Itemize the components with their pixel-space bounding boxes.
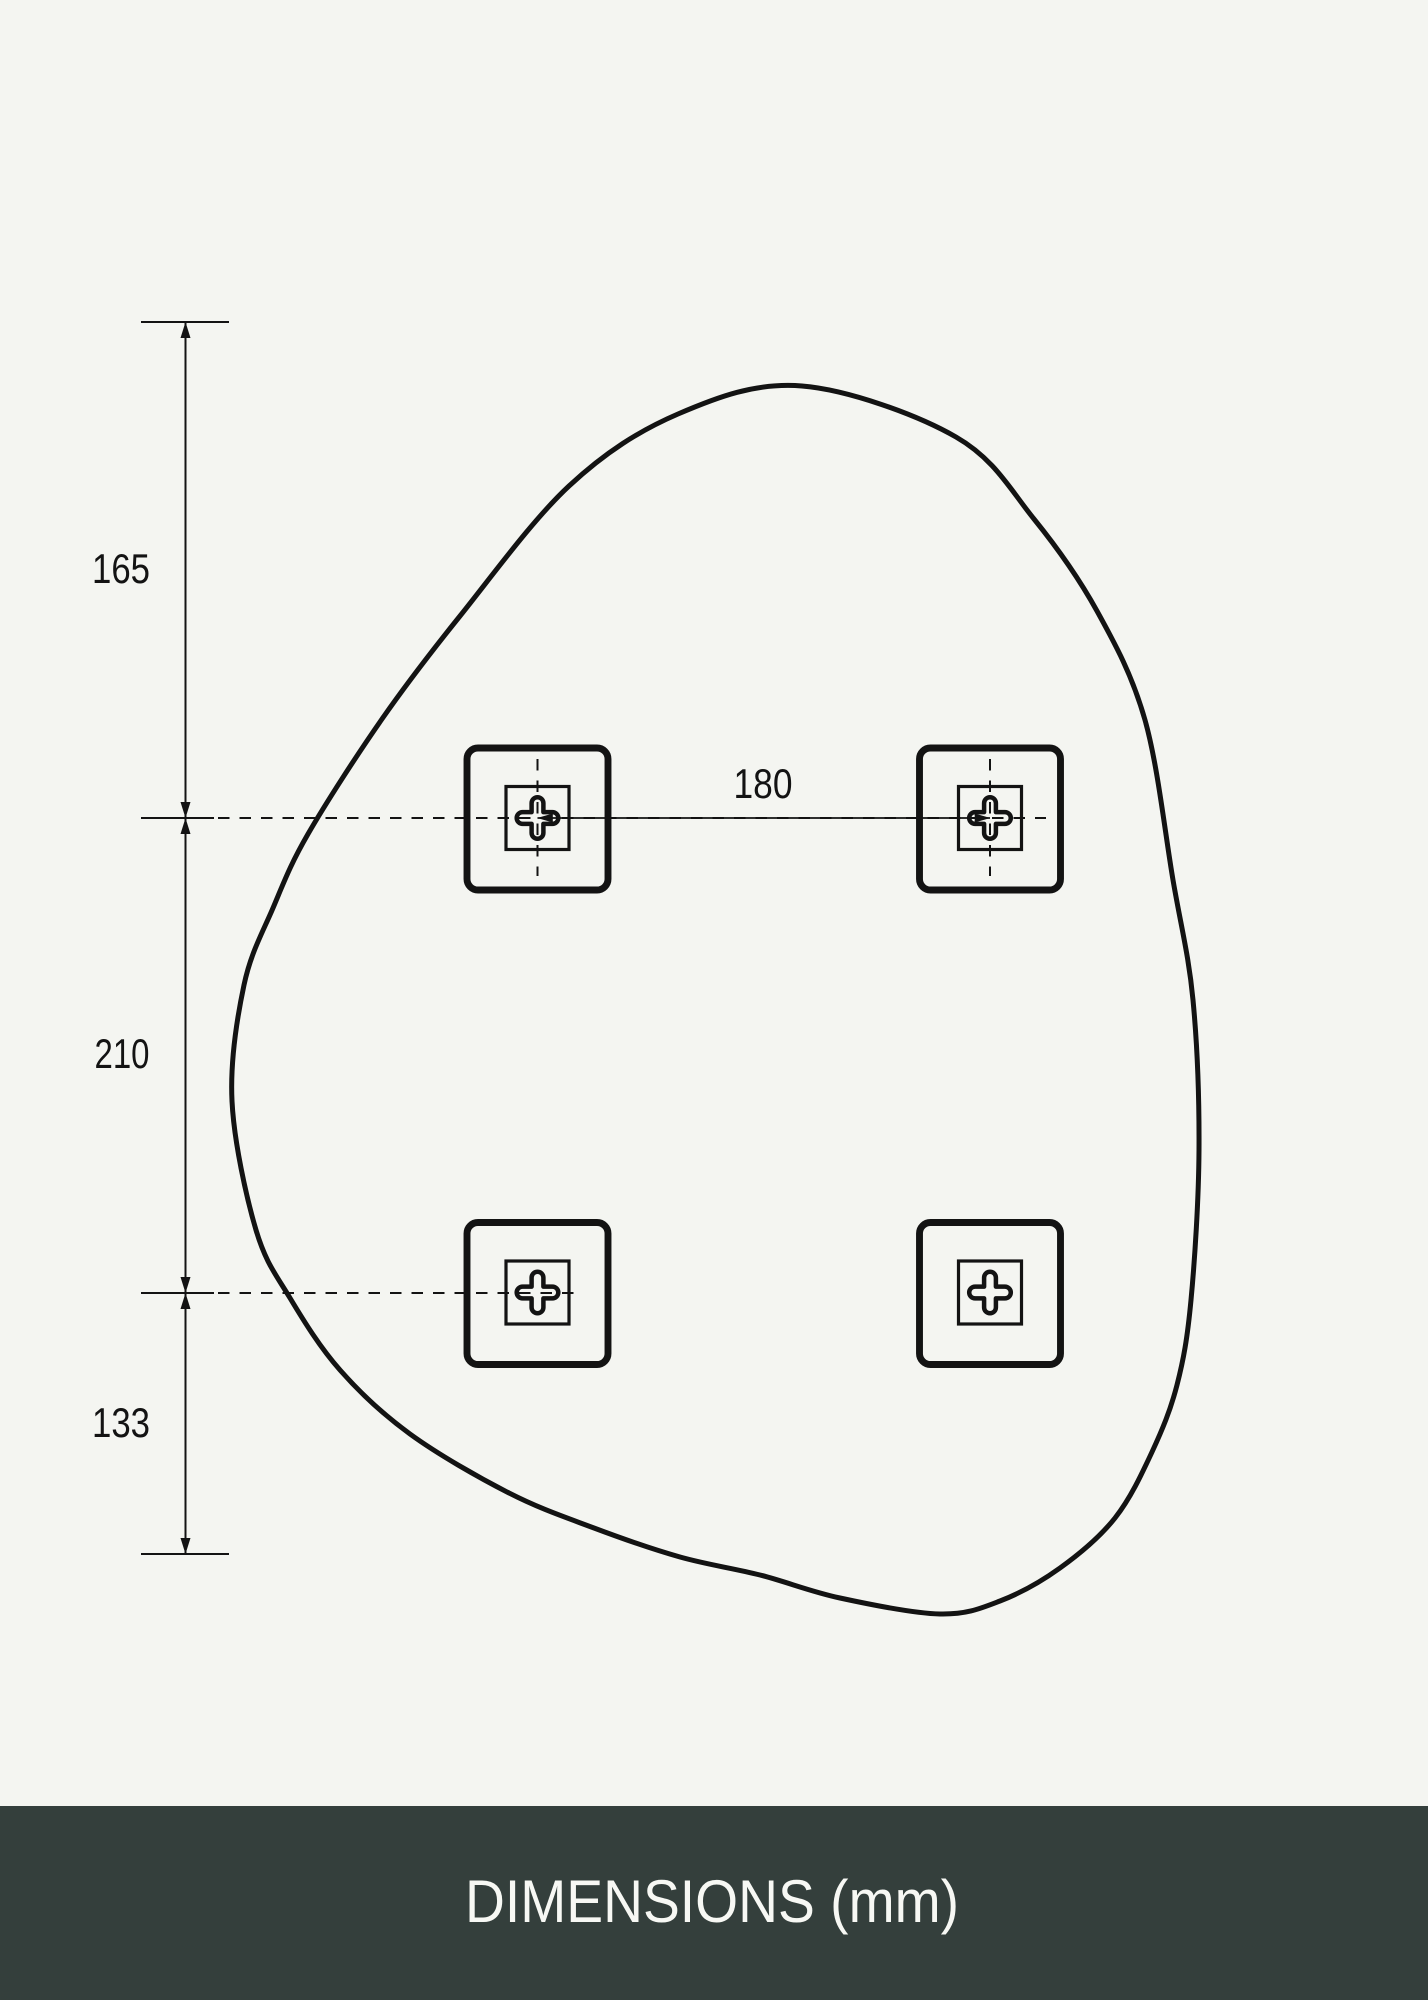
svg-text:165: 165 — [92, 545, 150, 592]
svg-text:DIMENSIONS (mm): DIMENSIONS (mm) — [465, 1868, 959, 1935]
svg-text:210: 210 — [95, 1030, 150, 1077]
svg-text:133: 133 — [92, 1399, 150, 1446]
svg-text:180: 180 — [734, 760, 793, 807]
